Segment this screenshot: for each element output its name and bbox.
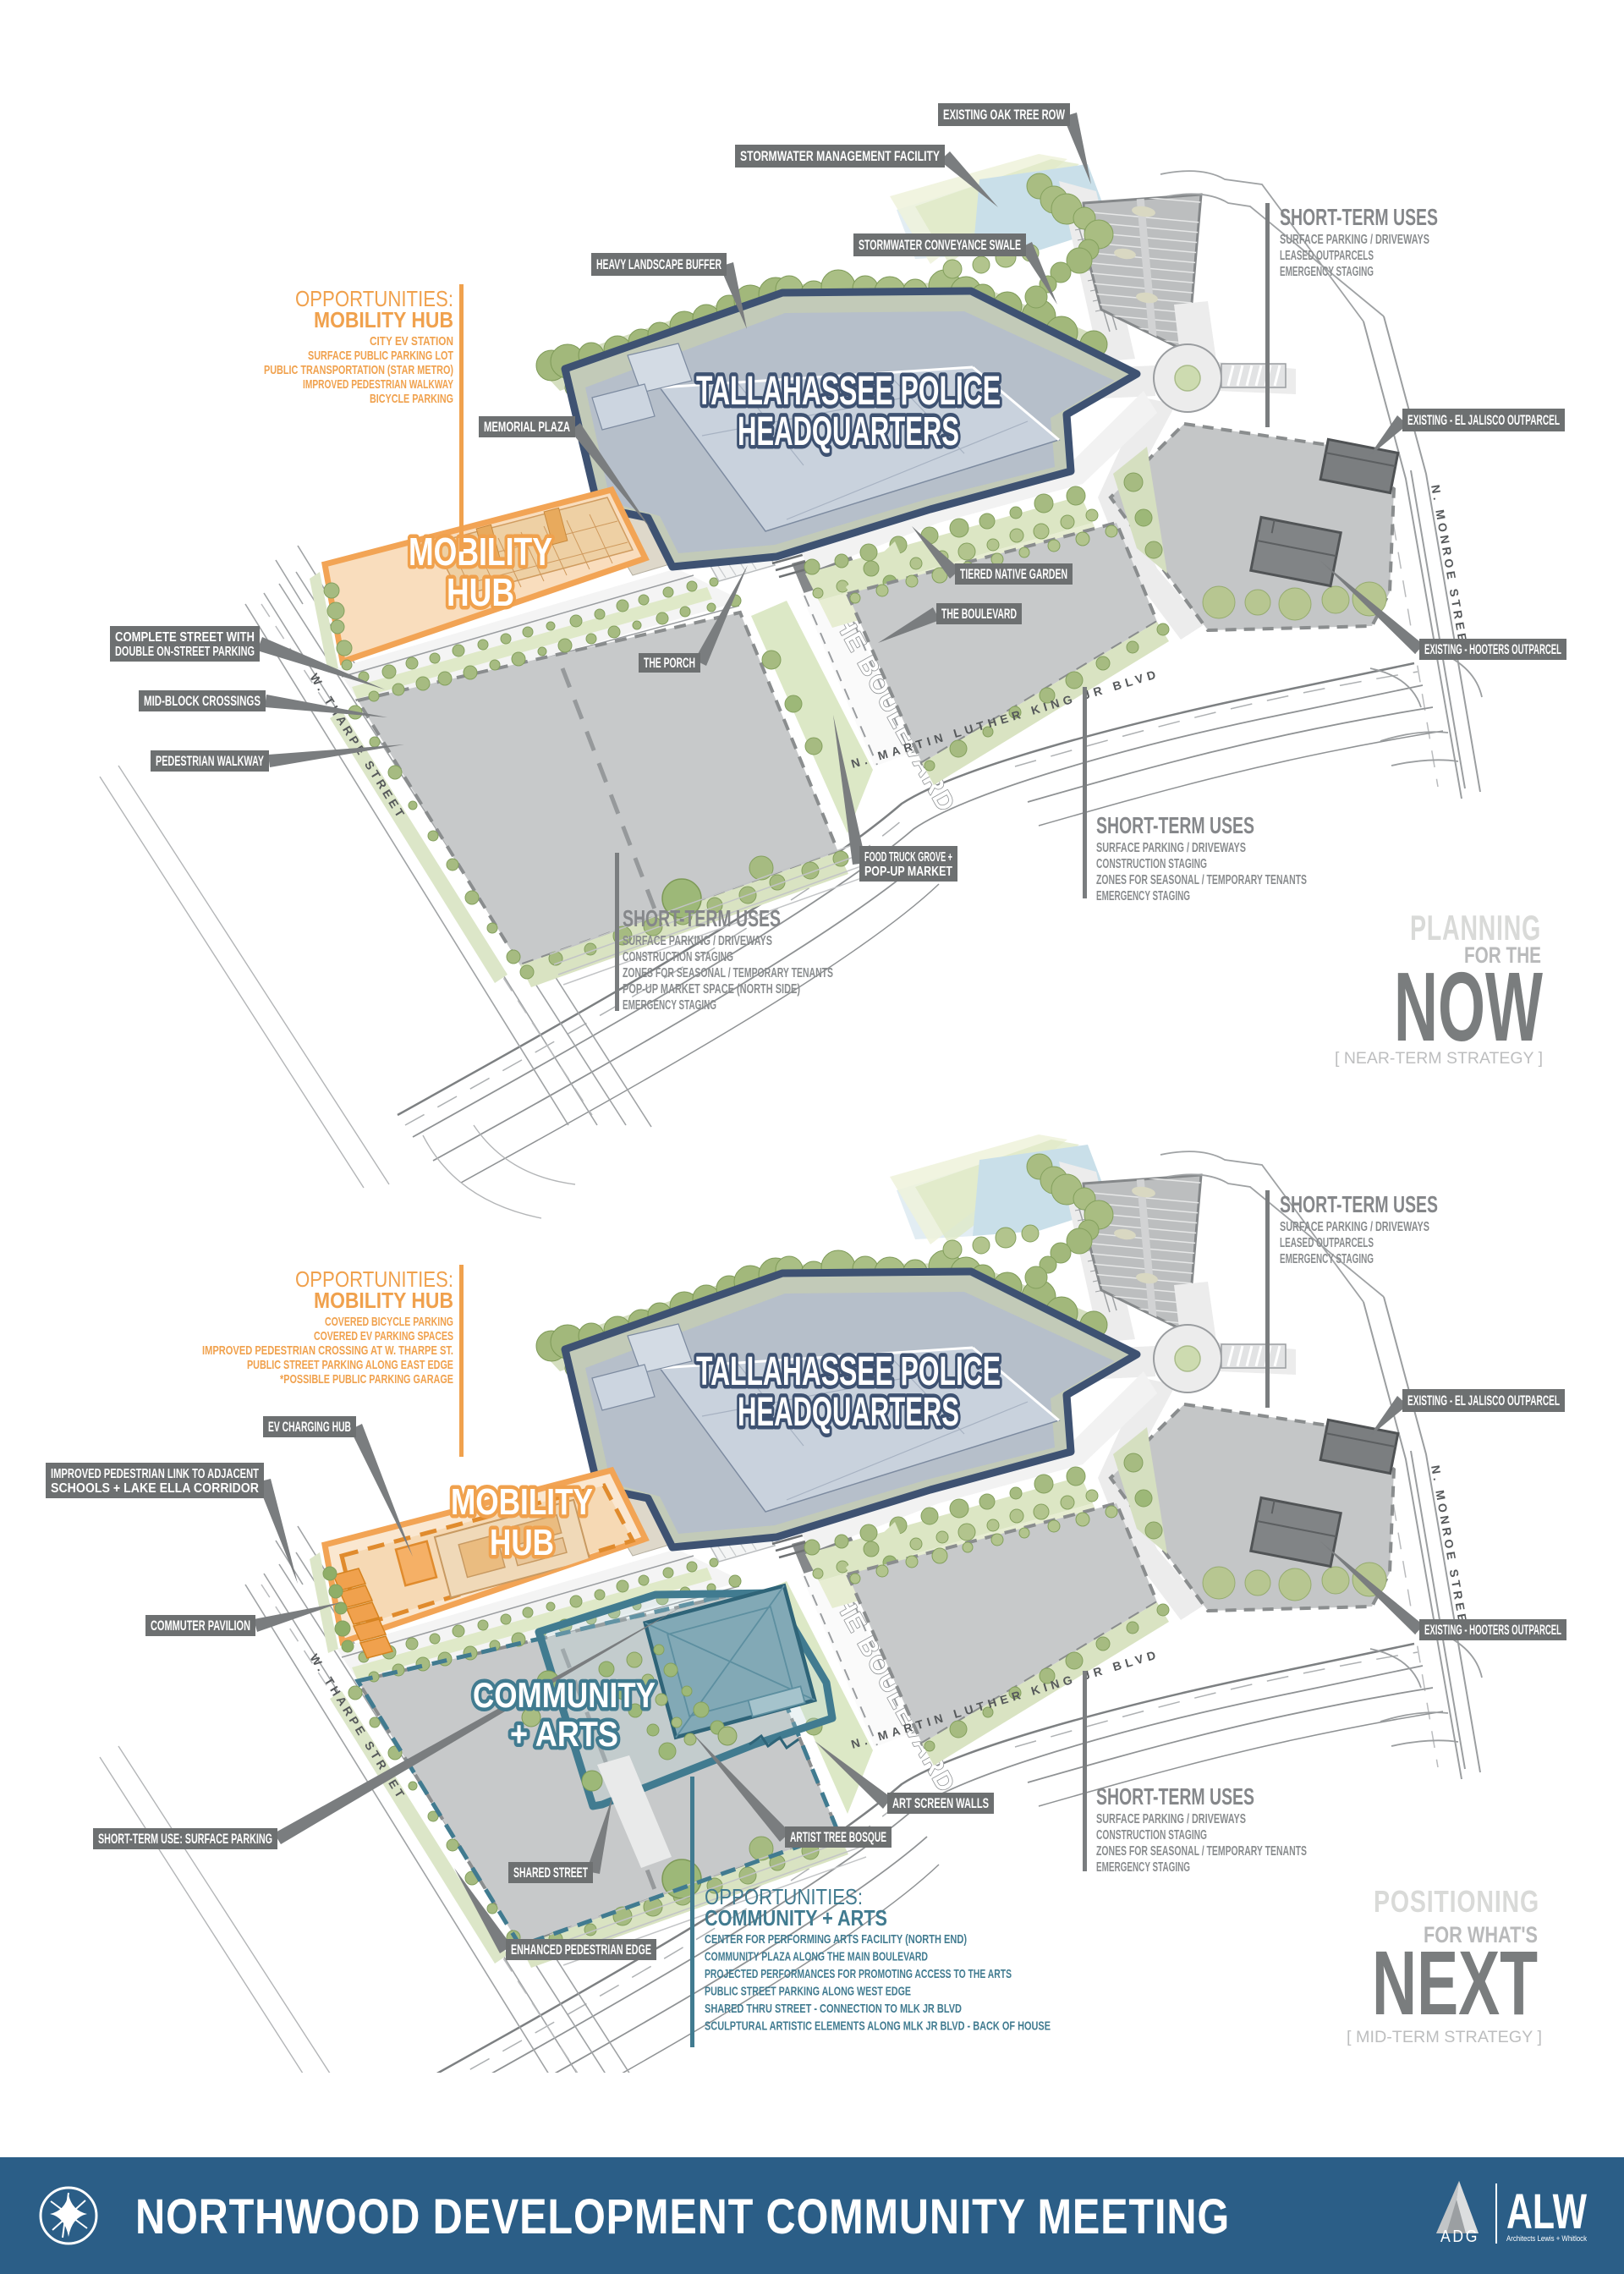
svg-text:SURFACE PARKING / DRIVEWAYS: SURFACE PARKING / DRIVEWAYS	[1096, 1812, 1246, 1826]
svg-text:MOBILITY HUB: MOBILITY HUB	[314, 1288, 453, 1313]
svg-text:SHORT-TERM USES: SHORT-TERM USES	[1280, 204, 1438, 230]
svg-text:EMERGENCY STAGING: EMERGENCY STAGING	[1280, 265, 1374, 279]
svg-text:ZONES FOR SEASONAL / TEMPORARY: ZONES FOR SEASONAL / TEMPORARY TENANTS	[623, 966, 833, 980]
svg-text:ENHANCED PEDESTRIAN EDGE: ENHANCED PEDESTRIAN EDGE	[511, 1942, 651, 1958]
svg-text:SURFACE PARKING / DRIVEWAYS: SURFACE PARKING / DRIVEWAYS	[623, 934, 772, 948]
svg-text:*POSSIBLE PUBLIC PARKING GARAG: *POSSIBLE PUBLIC PARKING GARAGE	[280, 1372, 453, 1387]
svg-text:SHORT-TERM USES: SHORT-TERM USES	[1280, 1191, 1438, 1217]
svg-text:POP-UP MARKET SPACE (NORTH SID: POP-UP MARKET SPACE (NORTH SIDE)	[623, 982, 800, 997]
svg-text:IMPROVED PEDESTRIAN CROSSING A: IMPROVED PEDESTRIAN CROSSING AT W. THARP…	[202, 1343, 453, 1358]
svg-text:CENTER FOR PERFORMING ARTS FAC: CENTER FOR PERFORMING ARTS FACILITY (NOR…	[705, 1932, 967, 1947]
svg-text:[ NEAR-TERM STRATEGY ]: [ NEAR-TERM STRATEGY ]	[1335, 1050, 1543, 1068]
svg-text:[ MID-TERM STRATEGY ]: [ MID-TERM STRATEGY ]	[1347, 2029, 1542, 2046]
svg-text:HUB: HUB	[447, 570, 514, 614]
svg-text:EV CHARGING HUB: EV CHARGING HUB	[268, 1420, 351, 1435]
svg-text:EXISTING - EL JALISCO OUTPARCE: EXISTING - EL JALISCO OUTPARCEL	[1407, 413, 1560, 428]
svg-text:CONSTRUCTION STAGING: CONSTRUCTION STAGING	[623, 950, 733, 964]
svg-text:NORTHWOOD DEVELOPMENT COMMUNIT: NORTHWOOD DEVELOPMENT COMMUNITY MEETING	[135, 2189, 1230, 2244]
svg-text:HEAVY LANDSCAPE BUFFER: HEAVY LANDSCAPE BUFFER	[596, 257, 721, 272]
svg-text:CITY EV STATION: CITY EV STATION	[370, 334, 453, 349]
svg-text:TALLAHASSEE POLICE: TALLAHASSEE POLICE	[696, 369, 1001, 414]
svg-text:PUBLIC STREET PARKING ALONG WE: PUBLIC STREET PARKING ALONG WEST EDGE	[705, 1985, 911, 1999]
svg-text:SURFACE PARKING / DRIVEWAYS: SURFACE PARKING / DRIVEWAYS	[1280, 233, 1429, 247]
svg-text:EMERGENCY STAGING: EMERGENCY STAGING	[1096, 1860, 1190, 1875]
svg-text:POP-UP MARKET: POP-UP MARKET	[864, 865, 952, 879]
svg-text:EMERGENCY STAGING: EMERGENCY STAGING	[623, 998, 716, 1013]
svg-text:STORMWATER CONVEYANCE SWALE: STORMWATER CONVEYANCE SWALE	[859, 238, 1021, 253]
svg-text:SHORT-TERM USE: SURFACE PARKIN: SHORT-TERM USE: SURFACE PARKING	[98, 1832, 272, 1847]
svg-text:EXISTING - HOOTERS OUTPARCEL: EXISTING - HOOTERS OUTPARCEL	[1424, 1623, 1561, 1638]
svg-text:PROJECTED PERFORMANCES FOR PRO: PROJECTED PERFORMANCES FOR PROMOTING ACC…	[705, 1967, 1012, 1981]
svg-text:SHORT-TERM USES: SHORT-TERM USES	[623, 905, 781, 931]
svg-text:ART SCREEN WALLS: ART SCREEN WALLS	[892, 1796, 989, 1811]
svg-text:PLANNING: PLANNING	[1410, 908, 1541, 947]
svg-text:COMPLETE STREET WITH: COMPLETE STREET WITH	[115, 630, 255, 645]
svg-text:HEADQUARTERS: HEADQUARTERS	[738, 1390, 959, 1435]
svg-text:SHORT-TERM USES: SHORT-TERM USES	[1096, 812, 1254, 838]
svg-text:SURFACE PARKING / DRIVEWAYS: SURFACE PARKING / DRIVEWAYS	[1280, 1220, 1429, 1234]
svg-text:Architects Lewis + Whitlock: Architects Lewis + Whitlock	[1506, 2234, 1587, 2243]
svg-text:EXISTING - EL JALISCO OUTPARCE: EXISTING - EL JALISCO OUTPARCEL	[1407, 1393, 1560, 1409]
svg-text:ZONES FOR SEASONAL / TEMPORARY: ZONES FOR SEASONAL / TEMPORARY TENANTS	[1096, 873, 1307, 887]
svg-text:EMERGENCY STAGING: EMERGENCY STAGING	[1096, 889, 1190, 904]
svg-text:COMMUNITY + ARTS: COMMUNITY + ARTS	[705, 1905, 887, 1931]
svg-text:SHORT-TERM USES: SHORT-TERM USES	[1096, 1783, 1254, 1810]
svg-text:PUBLIC TRANSPORTATION (STAR ME: PUBLIC TRANSPORTATION (STAR METRO)	[264, 363, 453, 377]
svg-text:BICYCLE PARKING: BICYCLE PARKING	[370, 392, 453, 406]
svg-text:LEASED OUTPARCELS: LEASED OUTPARCELS	[1280, 249, 1374, 263]
svg-text:THE BOULEVARD: THE BOULEVARD	[941, 607, 1017, 622]
svg-text:COVERED EV PARKING SPACES: COVERED EV PARKING SPACES	[314, 1329, 453, 1343]
svg-text:NOW: NOW	[1394, 952, 1543, 1062]
svg-text:IMPROVED PEDESTRIAN WALKWAY: IMPROVED PEDESTRIAN WALKWAY	[303, 377, 453, 392]
svg-text:SURFACE PUBLIC PARKING LOT: SURFACE PUBLIC PARKING LOT	[308, 349, 453, 363]
svg-text:MEMORIAL PLAZA: MEMORIAL PLAZA	[484, 420, 570, 435]
svg-text:LEASED OUTPARCELS: LEASED OUTPARCELS	[1280, 1236, 1374, 1250]
svg-text:SHARED STREET: SHARED STREET	[513, 1865, 588, 1881]
svg-text:COMMUNITY PLAZA ALONG THE MAIN: COMMUNITY PLAZA ALONG THE MAIN BOULEVARD	[705, 1950, 928, 1964]
svg-text:SURFACE PARKING / DRIVEWAYS: SURFACE PARKING / DRIVEWAYS	[1096, 841, 1246, 855]
svg-text:SCHOOLS + LAKE ELLA CORRIDOR: SCHOOLS + LAKE ELLA CORRIDOR	[51, 1481, 259, 1496]
svg-text:ZONES FOR SEASONAL / TEMPORARY: ZONES FOR SEASONAL / TEMPORARY TENANTS	[1096, 1844, 1307, 1859]
svg-text:DOUBLE ON-STREET PARKING: DOUBLE ON-STREET PARKING	[115, 645, 255, 659]
svg-text:EMERGENCY STAGING: EMERGENCY STAGING	[1280, 1252, 1374, 1266]
svg-text:COMMUNITY: COMMUNITY	[473, 1675, 656, 1715]
svg-text:MID-BLOCK CROSSINGS: MID-BLOCK CROSSINGS	[144, 694, 261, 709]
svg-text:EXISTING OAK TREE ROW: EXISTING OAK TREE ROW	[943, 107, 1065, 123]
svg-text:THE PORCH: THE PORCH	[644, 656, 695, 671]
svg-text:PEDESTRIAN WALKWAY: PEDESTRIAN WALKWAY	[156, 754, 264, 769]
svg-text:MOBILITY: MOBILITY	[451, 1481, 593, 1523]
svg-text:STORMWATER MANAGEMENT FACILITY: STORMWATER MANAGEMENT FACILITY	[740, 149, 940, 164]
svg-text:COMMUTER PAVILION: COMMUTER PAVILION	[151, 1618, 250, 1634]
svg-text:FOOD TRUCK GROVE +: FOOD TRUCK GROVE +	[864, 850, 952, 865]
svg-text:SHARED THRU STREET - CONNECTIO: SHARED THRU STREET - CONNECTION TO MLK J…	[705, 2002, 962, 2016]
svg-text:MOBILITY HUB: MOBILITY HUB	[314, 307, 453, 332]
svg-text:SCULPTURAL ARTISTIC ELEMENTS A: SCULPTURAL ARTISTIC ELEMENTS ALONG MLK J…	[705, 2019, 1051, 2034]
svg-text:EXISTING - HOOTERS OUTPARCEL: EXISTING - HOOTERS OUTPARCEL	[1424, 642, 1561, 657]
svg-text:IMPROVED PEDESTRIAN LINK TO AD: IMPROVED PEDESTRIAN LINK TO ADJACENT	[51, 1467, 259, 1481]
svg-text:CONSTRUCTION STAGING: CONSTRUCTION STAGING	[1096, 857, 1207, 871]
svg-text:POSITIONING: POSITIONING	[1374, 1884, 1539, 1919]
svg-text:PUBLIC STREET PARKING ALONG EA: PUBLIC STREET PARKING ALONG EAST EDGE	[247, 1358, 453, 1372]
svg-text:TALLAHASSEE POLICE: TALLAHASSEE POLICE	[696, 1349, 1001, 1394]
svg-text:HEADQUARTERS: HEADQUARTERS	[738, 409, 959, 454]
svg-text:NEXT: NEXT	[1372, 1931, 1538, 2034]
svg-text:TIERED NATIVE GARDEN: TIERED NATIVE GARDEN	[960, 567, 1067, 582]
svg-text:ALW: ALW	[1506, 2184, 1587, 2239]
svg-text:+ ARTS: + ARTS	[510, 1714, 618, 1754]
svg-text:ADG: ADG	[1440, 2227, 1479, 2246]
svg-text:ARTIST TREE BOSQUE: ARTIST TREE BOSQUE	[790, 1830, 886, 1845]
svg-text:COVERED BICYCLE PARKING: COVERED BICYCLE PARKING	[325, 1315, 453, 1329]
svg-text:CONSTRUCTION STAGING: CONSTRUCTION STAGING	[1096, 1828, 1207, 1843]
svg-text:MOBILITY: MOBILITY	[409, 530, 552, 574]
svg-text:HUB: HUB	[490, 1522, 554, 1563]
